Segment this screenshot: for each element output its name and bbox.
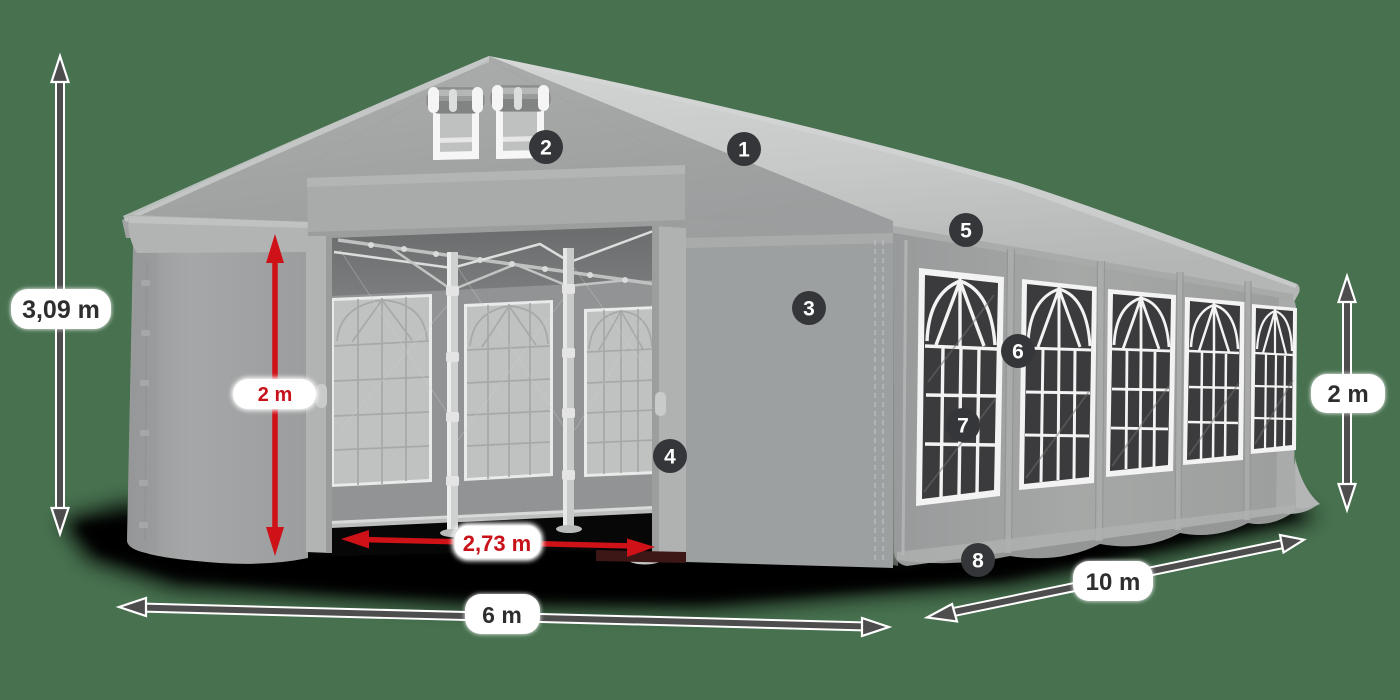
svg-text:1: 1	[738, 139, 750, 162]
svg-text:10 m: 10 m	[1086, 569, 1141, 596]
svg-text:2,73 m: 2,73 m	[463, 531, 532, 556]
svg-text:3,09 m: 3,09 m	[22, 296, 100, 324]
svg-text:4: 4	[664, 446, 676, 469]
svg-text:2: 2	[540, 137, 552, 160]
svg-text:2 m: 2 m	[258, 384, 292, 406]
svg-text:8: 8	[972, 550, 984, 573]
svg-text:7: 7	[957, 415, 969, 438]
svg-text:6 m: 6 m	[482, 602, 522, 628]
svg-text:3: 3	[803, 298, 815, 321]
svg-text:2 m: 2 m	[1327, 381, 1368, 408]
svg-text:6: 6	[1012, 341, 1024, 364]
svg-text:5: 5	[960, 220, 972, 243]
